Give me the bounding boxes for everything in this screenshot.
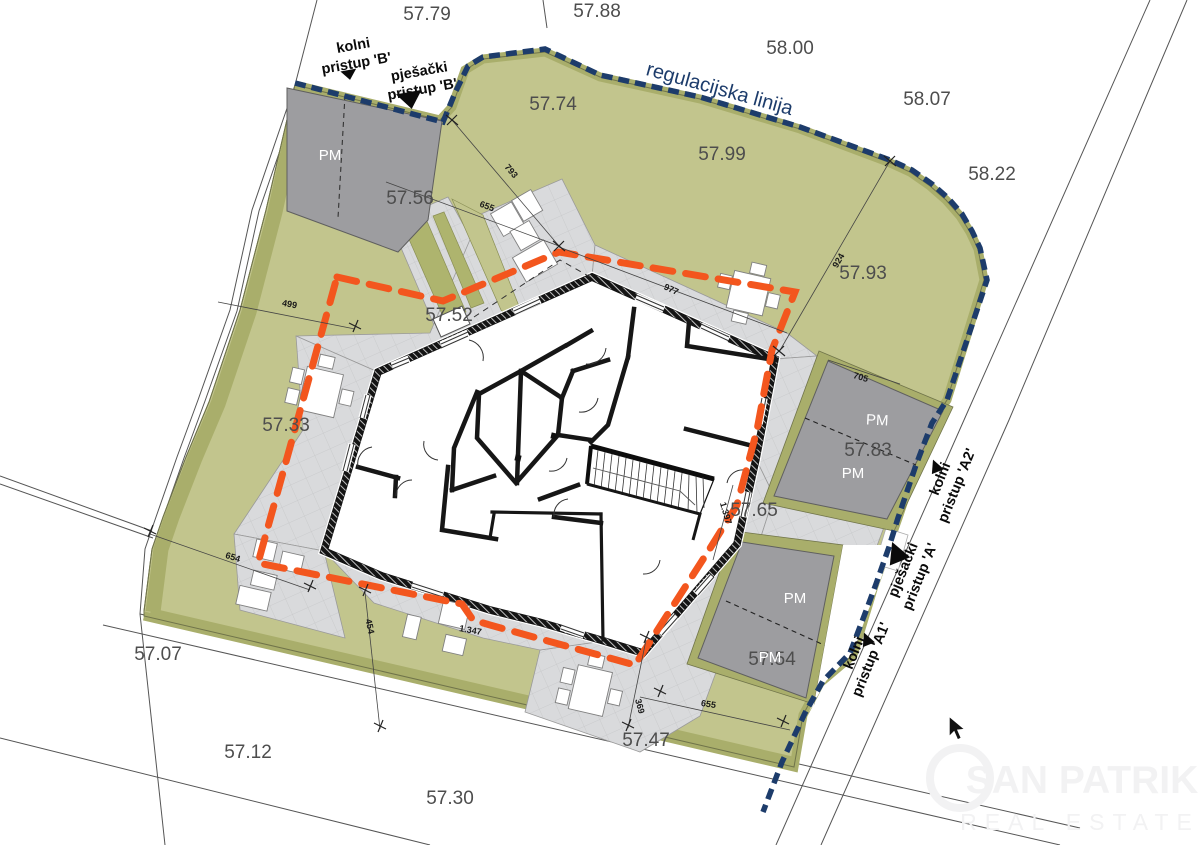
- svg-text:57.93: 57.93: [839, 263, 887, 284]
- svg-text:PM: PM: [866, 411, 889, 429]
- svg-text:57.12: 57.12: [224, 742, 272, 763]
- svg-text:57.74: 57.74: [529, 94, 577, 115]
- svg-text:58.07: 58.07: [903, 89, 951, 110]
- svg-text:57.52: 57.52: [425, 305, 473, 326]
- svg-text:57.99: 57.99: [698, 144, 746, 165]
- svg-text:57.47: 57.47: [622, 730, 670, 751]
- svg-text:58.22: 58.22: [968, 164, 1016, 185]
- svg-text:PM: PM: [784, 590, 807, 607]
- svg-text:58.00: 58.00: [766, 38, 814, 59]
- svg-text:REAL ESTATE: REAL ESTATE: [960, 809, 1200, 835]
- svg-text:57.79: 57.79: [403, 4, 451, 25]
- svg-text:57.33: 57.33: [262, 415, 310, 436]
- svg-text:57.88: 57.88: [573, 1, 621, 22]
- svg-text:SAN PATRIK: SAN PATRIK: [966, 759, 1199, 802]
- svg-text:PM: PM: [759, 649, 782, 666]
- svg-text:57.56: 57.56: [386, 188, 434, 209]
- svg-text:57.07: 57.07: [134, 644, 182, 665]
- svg-text:57.30: 57.30: [426, 788, 474, 809]
- svg-text:57.83: 57.83: [844, 440, 892, 461]
- svg-text:57.65: 57.65: [730, 500, 778, 521]
- svg-text:PM: PM: [319, 147, 342, 164]
- svg-text:PM: PM: [842, 465, 865, 482]
